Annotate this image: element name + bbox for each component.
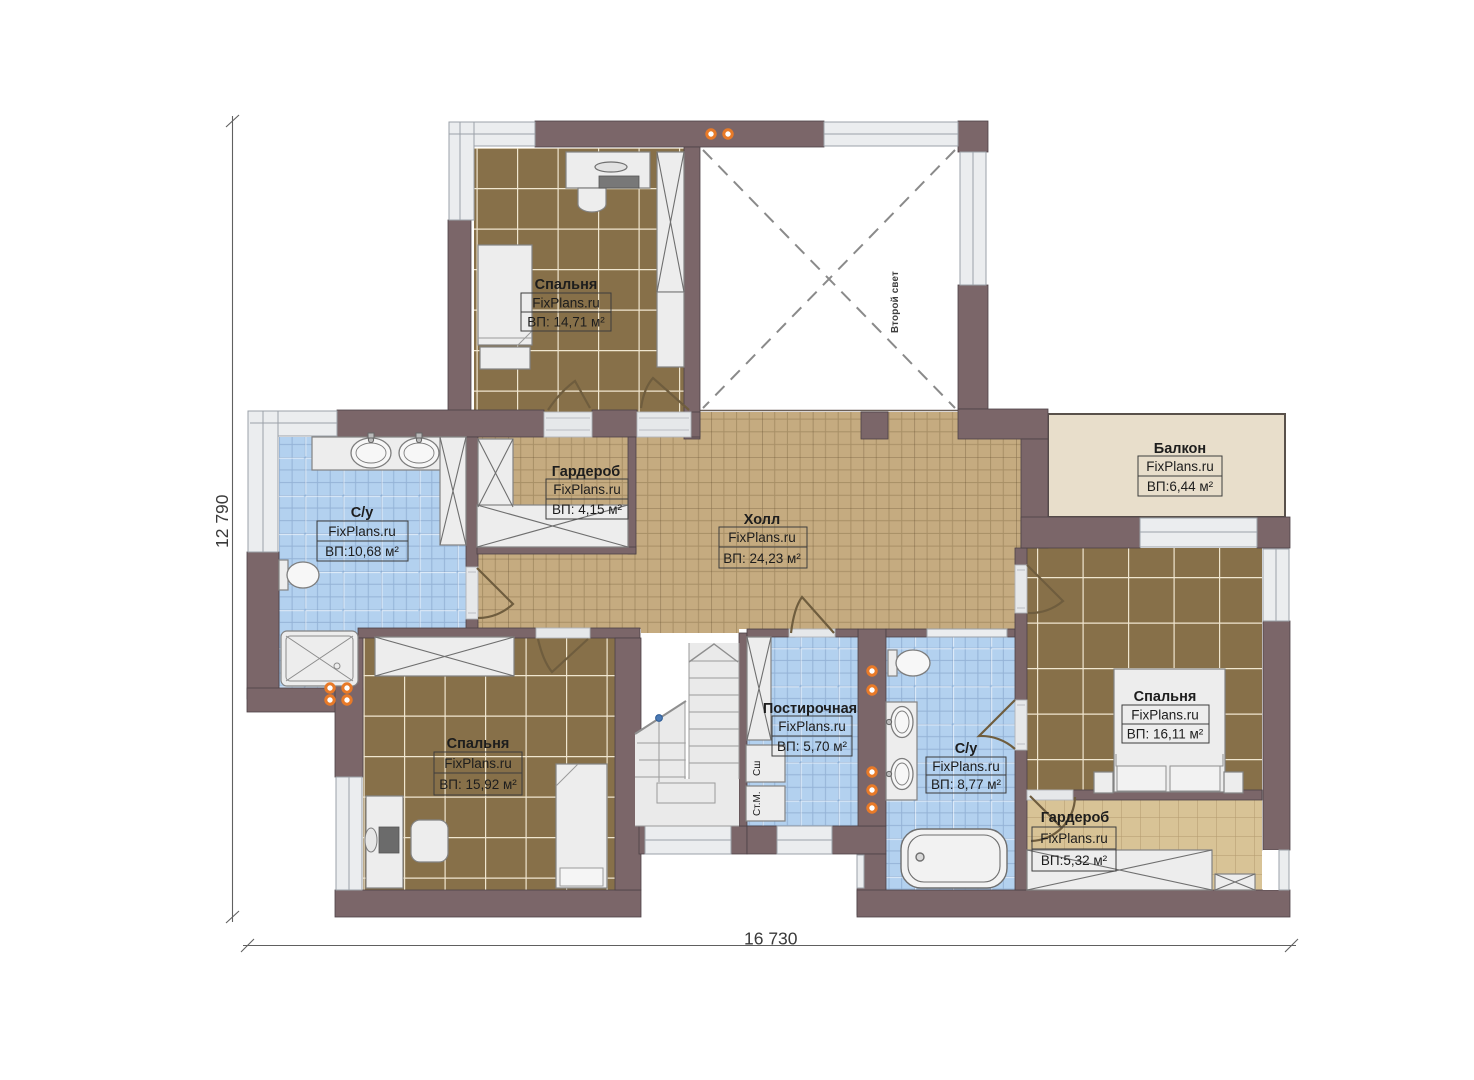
svg-text:Гардероб: Гардероб (1041, 810, 1110, 826)
svg-text:Спальня: Спальня (1134, 689, 1197, 705)
svg-text:Второй свет: Второй свет (890, 271, 901, 333)
svg-text:Спальня: Спальня (447, 736, 510, 752)
svg-text:ВП: 8,77 м²: ВП: 8,77 м² (931, 777, 1002, 792)
svg-text:FixPlans.ru: FixPlans.ru (778, 719, 846, 734)
svg-text:ВП:10,68 м²: ВП:10,68 м² (325, 544, 399, 559)
svg-text:FixPlans.ru: FixPlans.ru (532, 296, 600, 311)
svg-text:FixPlans.ru: FixPlans.ru (328, 524, 396, 539)
svg-text:FixPlans.ru: FixPlans.ru (1040, 831, 1108, 846)
svg-text:ВП: 4,15 м²: ВП: 4,15 м² (552, 502, 623, 517)
svg-text:ВП: 16,11 м²: ВП: 16,11 м² (1127, 727, 1204, 742)
svg-text:Ст.М.: Ст.М. (752, 791, 763, 816)
svg-text:FixPlans.ru: FixPlans.ru (728, 530, 796, 545)
svg-text:ВП: 5,70 м²: ВП: 5,70 м² (777, 739, 848, 754)
svg-text:12 790: 12 790 (212, 494, 232, 548)
svg-text:ВП: 24,23 м²: ВП: 24,23 м² (723, 551, 801, 566)
svg-text:ВП:5,32 м²: ВП:5,32 м² (1041, 853, 1108, 868)
svg-text:ВП: 14,71 м²: ВП: 14,71 м² (527, 315, 605, 330)
svg-text:FixPlans.ru: FixPlans.ru (553, 482, 621, 497)
svg-text:Гардероб: Гардероб (552, 464, 621, 480)
svg-text:Холл: Холл (744, 512, 780, 528)
svg-text:ВП: 15,92 м²: ВП: 15,92 м² (439, 777, 517, 792)
svg-text:FixPlans.ru: FixPlans.ru (444, 756, 512, 771)
svg-text:С/у: С/у (955, 741, 978, 757)
svg-text:С/у: С/у (351, 505, 374, 521)
svg-text:Постирочная: Постирочная (763, 701, 857, 717)
svg-text:FixPlans.ru: FixPlans.ru (1131, 708, 1199, 723)
svg-text:FixPlans.ru: FixPlans.ru (932, 759, 1000, 774)
svg-text:ВП:6,44 м²: ВП:6,44 м² (1147, 479, 1214, 494)
svg-text:FixPlans.ru: FixPlans.ru (1146, 459, 1214, 474)
svg-text:Сш: Сш (752, 761, 763, 776)
svg-text:16 730: 16 730 (744, 929, 798, 949)
svg-text:Спальня: Спальня (535, 277, 598, 293)
svg-text:Балкон: Балкон (1154, 441, 1206, 457)
